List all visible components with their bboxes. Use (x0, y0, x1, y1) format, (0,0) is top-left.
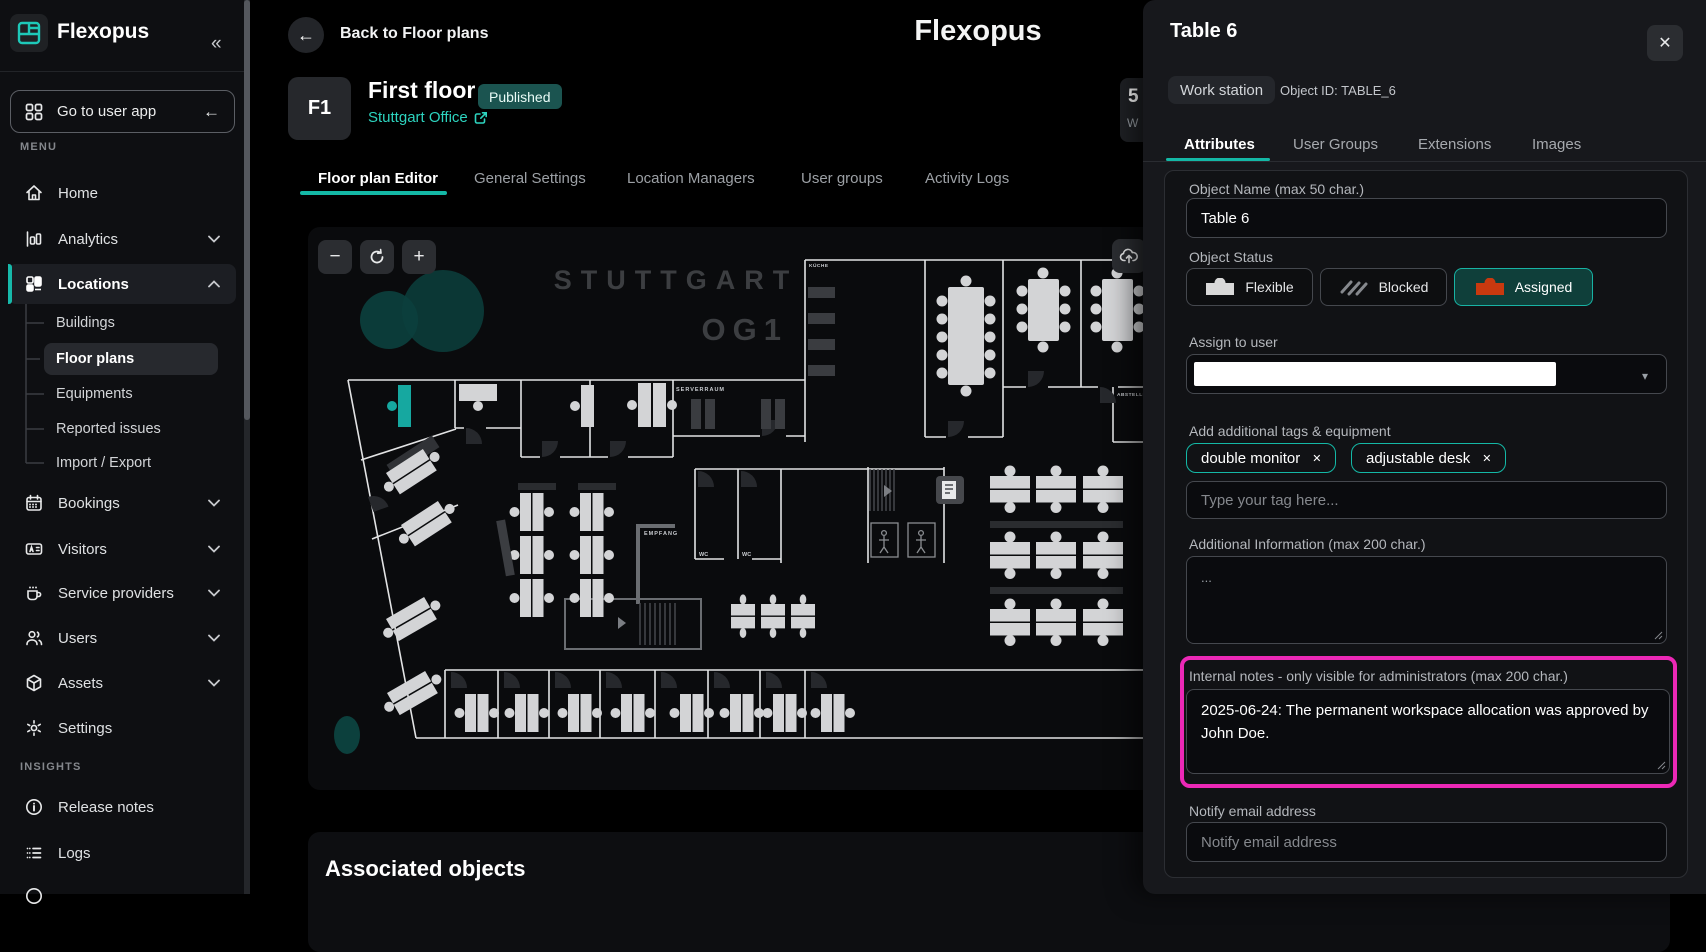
sidebar-item-logs[interactable]: Logs (8, 833, 236, 873)
close-icon: ✕ (1658, 33, 1671, 53)
stairs-arrow (884, 485, 892, 497)
sidebar: Flexopus « Go to user app ← MENU Home An… (0, 0, 244, 894)
object-name-value: Table 6 (1201, 210, 1249, 227)
resize-handle-icon[interactable] (1653, 630, 1663, 640)
sidebar-scrollbar-thumb[interactable] (244, 0, 250, 420)
tag-chip-adjustable-desk: adjustable desk ✕ (1351, 443, 1506, 473)
tag-input[interactable]: Type your tag here... (1186, 481, 1667, 519)
tag-chip-double-monitor: double monitor ✕ (1186, 443, 1336, 473)
additional-info-textarea[interactable]: ... (1186, 556, 1667, 644)
dropdown-caret-icon: ▾ (1642, 369, 1648, 383)
sidebar-item-clipped[interactable] (8, 876, 236, 916)
note-icon[interactable] (936, 476, 964, 504)
nav-tree-lines (0, 300, 60, 472)
room-labels: SERVERRAUM EMPFANG WC WC ABSTELLR KÜCHE (644, 262, 1147, 558)
zoom-out-button[interactable]: − (318, 240, 352, 274)
status-option-blocked[interactable]: Blocked (1320, 268, 1447, 306)
minus-icon: − (329, 246, 340, 268)
tag-input-placeholder: Type your tag here... (1201, 492, 1339, 509)
gear-icon (24, 718, 44, 738)
panel-tab-extensions[interactable]: Extensions (1418, 136, 1491, 153)
notify-email-input[interactable]: Notify email address (1186, 822, 1667, 862)
status-label: Assigned (1515, 279, 1573, 295)
chevron-down-icon (208, 235, 220, 243)
sidebar-item-label: Users (58, 630, 97, 647)
sidebar-item-label: Logs (58, 845, 91, 862)
panel-tab-divider (1143, 161, 1706, 162)
sidebar-item-label: Locations (58, 276, 129, 293)
chevron-down-icon (208, 679, 220, 687)
sidebar-item-service-providers[interactable]: Service providers (8, 573, 236, 613)
users-icon (24, 628, 44, 648)
chevron-down-icon (208, 499, 220, 507)
empty-selection-box[interactable] (1194, 362, 1556, 386)
go-to-user-app-label: Go to user app (57, 103, 156, 120)
floorplan-city-label: STUTTGART (554, 265, 798, 295)
sidebar-item-home[interactable]: Home (8, 173, 236, 213)
status-option-flexible[interactable]: Flexible (1186, 268, 1313, 306)
additional-info-label: Additional Information (max 200 char.) (1189, 536, 1426, 552)
info-icon (24, 797, 44, 817)
remove-tag-icon[interactable]: ✕ (1312, 452, 1321, 465)
go-to-user-app-button[interactable]: Go to user app ← (10, 90, 235, 133)
assign-to-user-label: Assign to user (1189, 334, 1278, 350)
sidebar-item-settings[interactable]: Settings (8, 708, 236, 748)
home-icon (24, 183, 44, 203)
sidebar-item-label: Release notes (58, 799, 154, 816)
analytics-icon (24, 229, 44, 249)
id-badge-icon (24, 539, 44, 559)
internal-notes-value: 2025-06-24: The permanent workspace allo… (1201, 702, 1649, 742)
chevron-down-icon (208, 545, 220, 553)
tag-label: adjustable desk (1366, 450, 1470, 467)
left-arrow-icon: ← (203, 102, 220, 122)
tags-label: Add additional tags & equipment (1189, 423, 1391, 439)
zoom-in-button[interactable]: + (402, 240, 436, 274)
selected-desk-table6[interactable] (387, 385, 411, 427)
status-label: Flexible (1245, 279, 1293, 295)
sidebar-item-analytics[interactable]: Analytics (8, 219, 236, 259)
object-status-label: Object Status (1189, 249, 1273, 265)
cloud-upload-icon (1119, 246, 1139, 266)
circle-icon (24, 886, 44, 906)
desk-grid-right[interactable] (731, 466, 1123, 647)
insights-section-label: INSIGHTS (20, 761, 82, 773)
status-option-assigned[interactable]: Assigned (1454, 268, 1593, 306)
sidebar-item-label: Bookings (58, 495, 120, 512)
blocked-stripes-icon (1339, 278, 1369, 296)
object-type-badge: Work station (1168, 76, 1275, 104)
associated-objects-title: Associated objects (325, 856, 526, 882)
panel-tab-user-groups[interactable]: User Groups (1293, 136, 1378, 153)
svg-text:SERVERRAUM: SERVERRAUM (676, 387, 725, 393)
location-link[interactable]: Stuttgart Office (368, 109, 488, 126)
notify-email-placeholder: Notify email address (1201, 834, 1337, 851)
sidebar-item-label: Service providers (58, 585, 174, 602)
additional-info-value: ... (1201, 570, 1212, 585)
flexible-desk-icon (1205, 278, 1235, 296)
sidebar-item-label: Visitors (58, 541, 107, 558)
assigned-desk-icon (1475, 278, 1505, 296)
svg-text:KÜCHE: KÜCHE (809, 262, 829, 269)
flexopus-logo-icon (10, 14, 48, 52)
sidebar-item-label: Analytics (58, 231, 118, 248)
panel-title: Table 6 (1170, 20, 1237, 43)
sidebar-item-label: Floor plans (56, 351, 134, 367)
active-indicator (8, 264, 12, 304)
panel-tab-attributes[interactable]: Attributes (1184, 136, 1255, 153)
floorplan-floor-label: OG1 (702, 312, 788, 347)
clipped-text: 5 (1128, 86, 1139, 108)
chevron-up-icon (208, 280, 220, 288)
rotate-button[interactable] (360, 240, 394, 274)
chevron-down-icon (208, 589, 220, 597)
collapse-sidebar-icon[interactable]: « (211, 33, 220, 55)
sidebar-item-label: Settings (58, 720, 112, 737)
server-racks (691, 287, 835, 429)
resize-handle-icon[interactable] (1656, 760, 1666, 770)
svg-text:WC: WC (699, 552, 708, 558)
floor-code-chip: F1 (288, 77, 351, 140)
status-badge: Published (478, 84, 562, 109)
sidebar-item-users[interactable]: Users (8, 618, 236, 658)
tab-activity-logs[interactable]: Activity Logs (925, 170, 1009, 187)
internal-notes-label: Internal notes - only visible for admini… (1189, 668, 1568, 684)
object-name-input[interactable]: Table 6 (1186, 198, 1667, 238)
sidebar-item-floor-plans[interactable]: Floor plans (44, 343, 218, 375)
sidebar-item-label: Home (58, 185, 98, 202)
object-detail-panel: Table 6 ✕ Work station Object ID: TABLE_… (1143, 0, 1706, 894)
desk-clusters-middle[interactable] (510, 483, 617, 617)
list-icon (24, 843, 44, 863)
grid-icon (25, 103, 43, 121)
cube-icon (24, 673, 44, 693)
sidebar-item-equipments[interactable]: Equipments (56, 386, 133, 402)
close-panel-button[interactable]: ✕ (1647, 25, 1683, 61)
tab-user-groups[interactable]: User groups (801, 170, 883, 187)
sidebar-item-release-notes[interactable]: Release notes (8, 787, 236, 827)
tab-floor-plan-editor[interactable]: Floor plan Editor (318, 170, 438, 187)
sidebar-item-buildings[interactable]: Buildings (56, 315, 115, 331)
calendar-icon (24, 493, 44, 513)
coffee-cup-icon (24, 583, 44, 603)
sidebar-item-locations[interactable]: Locations (8, 264, 236, 304)
panel-tab-images[interactable]: Images (1532, 136, 1581, 153)
object-name-label: Object Name (max 50 char.) (1189, 181, 1364, 197)
tab-general-settings[interactable]: General Settings (474, 170, 586, 187)
sidebar-item-bookings[interactable]: Bookings (8, 483, 236, 523)
location-link-label: Stuttgart Office (368, 109, 468, 126)
sidebar-item-label: Assets (58, 675, 103, 692)
notify-email-label: Notify email address (1189, 803, 1316, 819)
status-label: Blocked (1379, 279, 1429, 295)
active-tab-underline (300, 191, 447, 195)
upload-button[interactable] (1112, 239, 1146, 273)
angled-desks-left[interactable] (377, 435, 514, 720)
svg-text:WC: WC (742, 552, 751, 558)
locations-icon (24, 274, 44, 294)
internal-notes-textarea[interactable]: 2025-06-24: The permanent workspace allo… (1186, 689, 1670, 774)
sidebar-item-reported-issues[interactable]: Reported issues (56, 421, 161, 437)
brand-name: Flexopus (57, 20, 149, 44)
office-desks-top[interactable] (459, 383, 677, 427)
rotate-icon (368, 248, 386, 266)
tag-label: double monitor (1201, 450, 1300, 467)
chevron-down-icon (208, 634, 220, 642)
sidebar-item-assets[interactable]: Assets (8, 663, 236, 703)
svg-text:EMPFANG: EMPFANG (644, 531, 678, 537)
menu-section-label: MENU (20, 141, 57, 153)
clipped-header-fragment: 5 W (1120, 78, 1143, 142)
sidebar-item-visitors[interactable]: Visitors (8, 529, 236, 569)
stairs-arrow (618, 617, 626, 629)
external-link-icon (474, 111, 488, 125)
tab-location-managers[interactable]: Location Managers (627, 170, 755, 187)
floor-name: First floor (368, 77, 475, 104)
clipped-text: W (1127, 116, 1138, 130)
assign-to-user-select[interactable]: ▾ (1186, 354, 1667, 394)
sidebar-divider (0, 71, 244, 72)
plus-icon: + (413, 246, 424, 268)
sidebar-item-import-export[interactable]: Import / Export (56, 455, 151, 471)
object-id: Object ID: TABLE_6 (1280, 83, 1396, 98)
remove-tag-icon[interactable]: ✕ (1482, 452, 1491, 465)
wc-icons (871, 523, 935, 557)
